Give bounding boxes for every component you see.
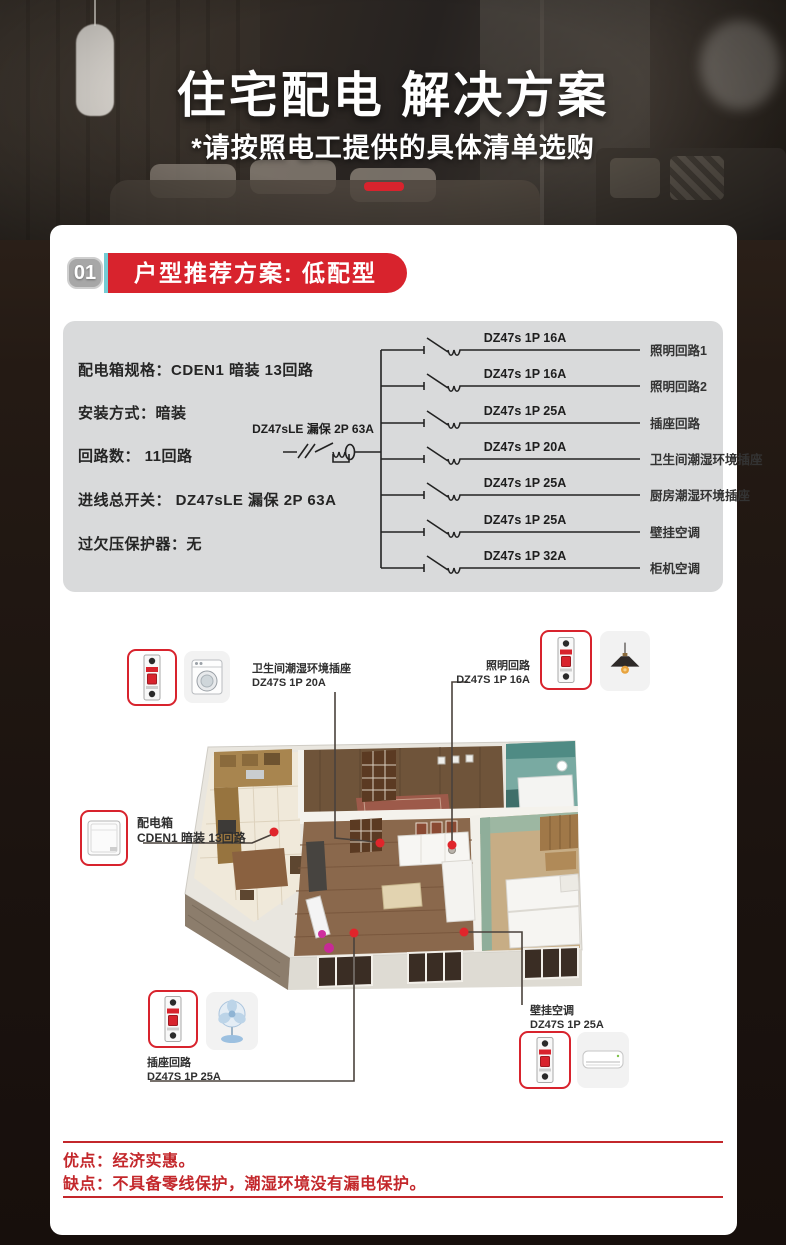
distribution-box-icon bbox=[86, 817, 122, 859]
cons-text: 缺点：不具备零线保护，潮湿环境没有漏电保护。 bbox=[63, 1170, 426, 1194]
hero-photo: 住宅配电 解决方案 *请按照电工提供的具体清单选购 bbox=[0, 0, 786, 240]
callout-circuit-name: 配电箱 bbox=[137, 816, 173, 830]
distribution-box-callout bbox=[80, 810, 128, 866]
breaker-box bbox=[127, 649, 177, 706]
breaker-box bbox=[540, 630, 592, 690]
appliance-box bbox=[600, 631, 650, 691]
section-header: 01 户型推荐方案: 低配型 bbox=[67, 253, 407, 293]
callout-breaker-model: DZ47S 1P 25A bbox=[530, 1019, 604, 1031]
section-number-badge: 01 bbox=[67, 257, 103, 289]
air-conditioner-icon bbox=[581, 1045, 625, 1075]
callout-label-distribution-box: 配电箱 CDEN1 暗装 13回路 bbox=[137, 816, 246, 846]
spec-circuit-count: 回路数： 11回路 bbox=[78, 445, 193, 466]
callout-circuit-name: 照明回路 bbox=[486, 660, 530, 672]
callout-circuit-name: 插座回路 bbox=[147, 1057, 191, 1069]
spec-box: 配电箱规格：CDEN1 暗装 13回路 安装方式：暗装 回路数： 11回路 进线… bbox=[63, 321, 723, 592]
page-title: 住宅配电 解决方案 bbox=[0, 56, 786, 127]
spec-install-type: 安装方式：暗装 bbox=[78, 402, 187, 423]
appliance-box bbox=[184, 651, 230, 703]
washing-machine-icon bbox=[190, 658, 224, 696]
circuit-breaker-icon bbox=[162, 995, 184, 1043]
callout-breaker-model: DZ47S 1P 16A bbox=[456, 674, 530, 686]
callout-label-socket: 插座回路 DZ47S 1P 25A bbox=[147, 1056, 221, 1084]
page-subtitle: *请按照电工提供的具体清单选购 bbox=[0, 126, 786, 165]
callout-label-bathroom-socket: 卫生间潮湿环境插座 DZ47S 1P 20A bbox=[252, 662, 351, 690]
spec-ov-uv-protect: 过欠压保护器：无 bbox=[78, 533, 202, 554]
electric-fan-icon bbox=[211, 997, 253, 1045]
spec-box-model: 配电箱规格：CDEN1 暗装 13回路 bbox=[78, 359, 313, 380]
callout-circuit-name: 卫生间潮湿环境插座 bbox=[252, 663, 351, 675]
pros-text: 优点：经济实惠。 bbox=[63, 1147, 195, 1171]
callout-breaker-model: CDEN1 暗装 13回路 bbox=[137, 831, 246, 845]
breaker-box bbox=[148, 990, 198, 1048]
callout-circuit-name: 壁挂空调 bbox=[530, 1005, 574, 1017]
breaker-box bbox=[519, 1031, 571, 1089]
circuit-breaker-icon bbox=[534, 1036, 556, 1084]
circuit-breaker-icon bbox=[141, 654, 163, 701]
section-title-banner: 户型推荐方案: 低配型 bbox=[108, 253, 407, 293]
callout-breaker-model: DZ47S 1P 20A bbox=[252, 677, 326, 689]
appliance-box bbox=[577, 1032, 629, 1088]
callout-breaker-model: DZ47S 1P 25A bbox=[147, 1071, 221, 1083]
spec-main-switch: 进线总开关： DZ47sLE 漏保 2P 63A bbox=[78, 489, 336, 510]
footer-divider-bottom bbox=[63, 1196, 723, 1198]
red-dash-accent bbox=[364, 182, 404, 191]
footer-divider-top bbox=[63, 1141, 723, 1143]
appliance-box bbox=[206, 992, 258, 1050]
page: 住宅配电 解决方案 *请按照电工提供的具体清单选购 01 户型推荐方案: 低配型… bbox=[0, 0, 786, 1245]
circuit-breaker-icon bbox=[555, 635, 577, 685]
callout-label-wall-ac: 壁挂空调 DZ47S 1P 25A bbox=[530, 1004, 604, 1032]
pendant-lamp-icon bbox=[605, 638, 645, 684]
callout-label-lighting: 照明回路 DZ47S 1P 16A bbox=[430, 659, 530, 687]
